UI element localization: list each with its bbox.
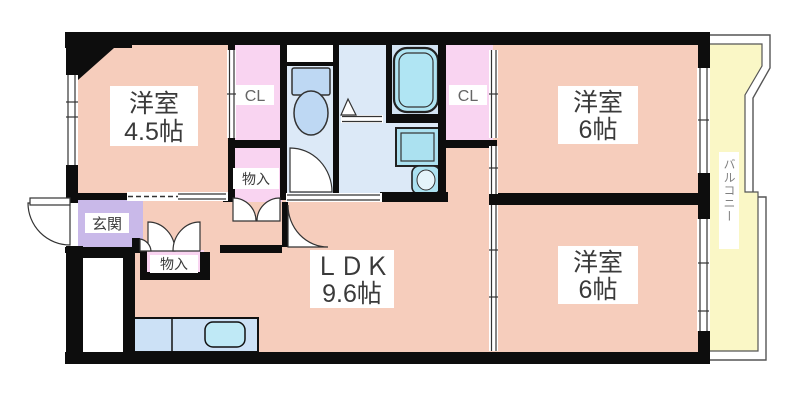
wall-segment bbox=[438, 45, 446, 202]
room-6-bottom-label-line1: 洋室 bbox=[573, 249, 623, 277]
window-left bbox=[65, 75, 78, 165]
balcony: バルコニー bbox=[708, 35, 770, 360]
washbasin-bowl bbox=[417, 170, 435, 190]
wall-segment bbox=[66, 163, 78, 203]
floor-plan: バルコニー bbox=[0, 0, 800, 401]
closet-left-label: CL bbox=[245, 88, 266, 105]
window-right-bottom bbox=[697, 219, 710, 331]
wall-segment bbox=[489, 193, 710, 205]
void-area bbox=[83, 256, 123, 352]
wall-segment bbox=[66, 246, 83, 356]
closet-left-door bbox=[227, 50, 236, 138]
wall-segment bbox=[132, 238, 140, 248]
room-6-bottom-label-line2: 6帖 bbox=[579, 276, 618, 304]
wall-segment bbox=[438, 140, 497, 148]
storage-hall-label: 物入 bbox=[160, 256, 188, 272]
balcony-label: バルコニー bbox=[722, 158, 736, 223]
wall-segment bbox=[65, 32, 710, 45]
toilet-bowl-icon bbox=[294, 91, 328, 135]
room-6-top-label-line2: 6帖 bbox=[579, 116, 618, 144]
wall-segment bbox=[65, 352, 710, 364]
wall-segment bbox=[140, 272, 210, 280]
ldk-label-line2: 9.6帖 bbox=[322, 280, 382, 308]
wall-segment bbox=[380, 192, 448, 202]
room-6-top-door bbox=[489, 146, 498, 194]
washing-machine-icon bbox=[396, 128, 439, 166]
entrance-door-leaf bbox=[30, 198, 70, 205]
corridor-threshold bbox=[341, 115, 383, 123]
ldk-room6-partition bbox=[489, 205, 498, 351]
entrance-door-swing bbox=[28, 203, 70, 245]
closet-right-label: CL bbox=[458, 88, 479, 105]
closet-right-door bbox=[489, 50, 498, 138]
wall-segment bbox=[698, 32, 710, 70]
kitchen bbox=[130, 318, 258, 352]
wall-segment bbox=[282, 202, 288, 247]
wall-segment bbox=[228, 140, 287, 148]
wall-segment bbox=[333, 45, 339, 195]
washroom-threshold bbox=[286, 193, 382, 202]
wall-segment bbox=[287, 62, 333, 66]
wall-segment bbox=[123, 250, 135, 352]
wall-segment bbox=[66, 32, 78, 77]
room-6-top-label-line1: 洋室 bbox=[573, 89, 623, 117]
wall-segment bbox=[386, 45, 392, 118]
floor-plan-drawing: バルコニー bbox=[0, 0, 800, 401]
room-4_5-label-line1: 洋室 bbox=[129, 90, 179, 118]
wall-segment bbox=[698, 331, 710, 354]
kitchen-sink-icon bbox=[205, 322, 245, 347]
wall-segment bbox=[386, 114, 442, 123]
room-4_5-label-line2: 4.5帖 bbox=[124, 118, 184, 146]
storage-top-label: 物入 bbox=[242, 171, 270, 187]
wall-segment bbox=[280, 45, 287, 200]
window-right-top bbox=[697, 68, 710, 173]
room-4_5-sliding-door bbox=[127, 192, 228, 201]
wall-segment bbox=[220, 245, 282, 253]
ldk-label-line1: ＬＤＫ bbox=[314, 253, 389, 281]
entrance-label: 玄関 bbox=[92, 216, 122, 233]
wall-segment bbox=[78, 193, 127, 200]
vestibule-floor bbox=[443, 142, 497, 204]
